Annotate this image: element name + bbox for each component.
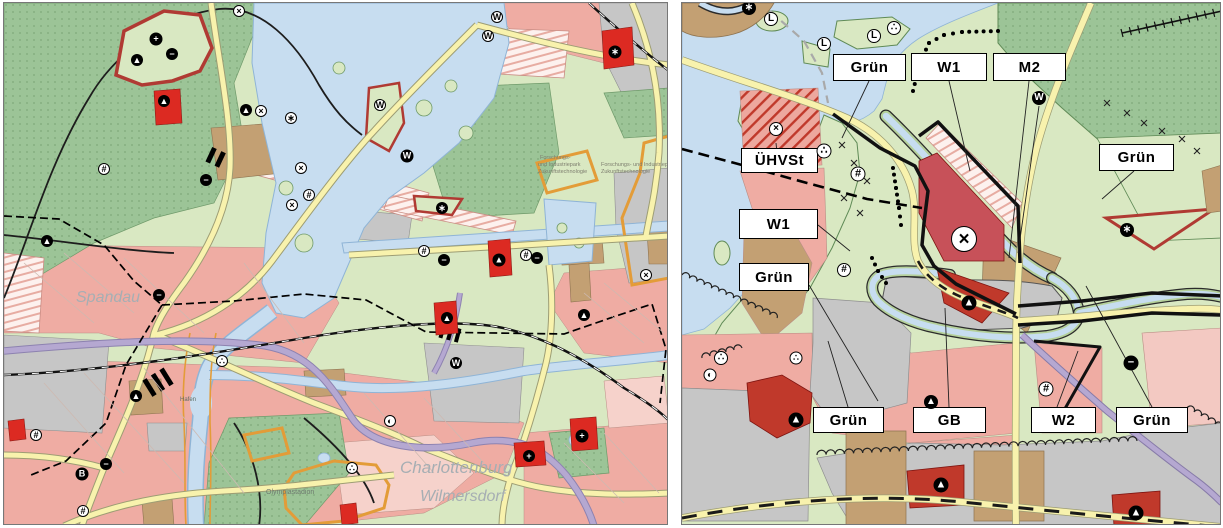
minus-icon: − [153,289,165,301]
area-label-m2[interactable]: M2 [993,53,1066,81]
grid-circle-icon: # [303,189,315,201]
grid-circle-icon: # [418,245,430,257]
triangle-monument-icon: ▲ [962,296,977,311]
l-circle-icon: L [817,37,831,51]
grid-circle-icon: # [98,163,110,175]
cross-icon: + [576,430,589,443]
triangle-monument-icon: ▲ [1129,506,1144,521]
x-circle-icon: × [769,122,783,136]
triangle-monument-icon: ▲ [130,390,142,402]
dots-circle-icon: ∴ [714,351,728,365]
grid-circle-icon: # [77,505,89,517]
minus-icon: − [1124,356,1139,371]
grid-circle-icon: # [520,249,532,261]
area-label-uehvst[interactable]: ÜHVSt [741,148,818,173]
triangle-monument-icon: ▲ [441,312,453,324]
triangle-monument-icon: ▲ [578,309,590,321]
area-label-w2[interactable]: W2 [1031,407,1096,433]
l-circle-icon: L [764,12,778,26]
w-icon: W [374,99,386,111]
grid-circle-icon: # [1039,382,1054,397]
asterisk-circle-icon: ∗ [285,112,297,124]
x-circle-icon: × [233,5,245,17]
triangle-monument-icon: ▲ [789,413,804,428]
triangle-monument-icon: ▲ [41,235,53,247]
triangle-monument-icon: ▲ [158,95,170,107]
triangle-monument-icon: ▲ [131,54,143,66]
l-circle-icon: L [867,29,881,43]
half-circle-icon: ◐ [384,415,396,427]
area-label-w1-left[interactable]: W1 [739,209,818,239]
triangle-monument-icon: ▲ [924,395,938,409]
dots-circle-icon: ∴ [216,355,228,367]
triangle-monument-icon: ▲ [934,478,949,493]
area-label-gruen-right[interactable]: Grün [1099,144,1174,171]
triangle-monument-icon: ▲ [493,254,506,267]
dots-circle-icon: ∴ [346,462,358,474]
w-icon: W [450,357,462,369]
dots-circle-icon: ∴ [887,21,901,35]
w-icon: W [1032,91,1046,105]
x-circle-icon: × [286,199,298,211]
dots-circle-icon: ∴ [817,144,832,159]
w-icon: W [401,150,414,163]
w-icon: W [482,30,494,42]
asterisk-icon: ∗ [1120,223,1134,237]
w-icon: W [491,11,503,23]
asterisk-icon: ∗ [609,46,622,59]
area-label-w1-top[interactable]: W1 [911,53,987,81]
dots-circle-icon: ∴ [790,352,803,365]
x-circle-icon: × [640,269,652,281]
detail-plan-panel[interactable]: Grün W1 M2 Grün ÜHVSt W1 Grün Grün GB W2… [681,2,1221,525]
area-label-gruen-left[interactable]: Grün [739,263,809,291]
minus-icon: − [200,174,212,186]
minus-icon: − [531,252,543,264]
minus-icon: − [438,254,450,266]
x-circle-icon: × [295,162,307,174]
b-station-icon: B [76,468,89,481]
area-label-gb[interactable]: GB [913,407,986,433]
minus-icon: − [166,48,178,60]
minus-icon: − [100,458,112,470]
grid-circle-icon: # [837,263,851,277]
overview-map-canvas [4,3,668,525]
overview-map-panel[interactable]: Spandau Hafen Forschungs- und Industriep… [3,2,668,525]
area-label-gruen-bottom-left[interactable]: Grün [813,407,884,433]
x-circle-icon: × [255,105,267,117]
triangle-monument-icon: ▲ [240,104,252,116]
cross-icon: + [523,450,535,462]
area-label-gruen-top[interactable]: Grün [833,54,906,81]
half-circle-icon: ◐ [704,369,717,382]
grid-circle-icon: # [851,167,866,182]
grid-circle-icon: # [30,429,42,441]
area-label-gruen-bottom-right[interactable]: Grün [1116,407,1188,433]
map-comparison-view: Spandau Hafen Forschungs- und Industriep… [0,0,1223,528]
asterisk-icon: ∗ [436,202,448,214]
x-circle-icon: × [951,226,977,252]
cross-icon: + [150,33,163,46]
